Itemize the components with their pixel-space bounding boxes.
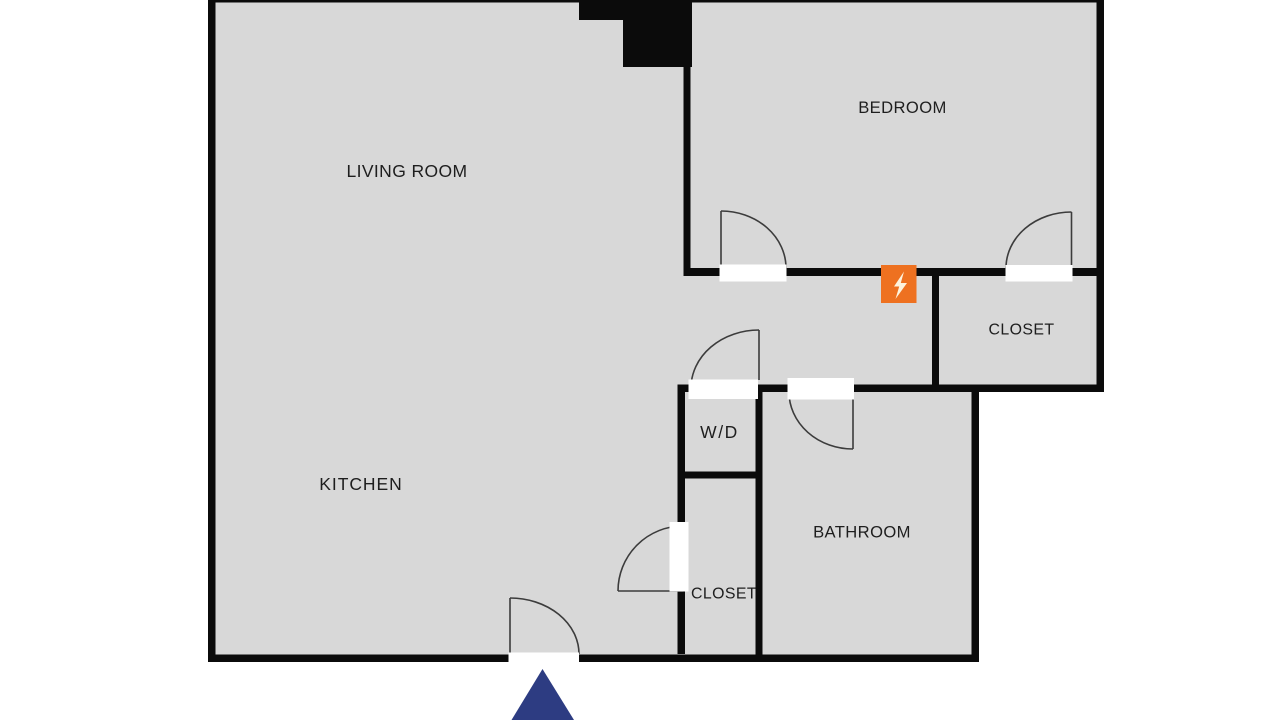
svg-text:KITCHEN: KITCHEN [319,474,402,494]
svg-text:BEDROOM: BEDROOM [858,98,947,117]
svg-text:W/D: W/D [700,422,739,442]
svg-text:CLOSET: CLOSET [691,586,757,603]
svg-text:BATHROOM: BATHROOM [813,523,911,542]
svg-text:CLOSET: CLOSET [989,322,1055,339]
svg-text:LIVING ROOM: LIVING ROOM [346,161,467,181]
